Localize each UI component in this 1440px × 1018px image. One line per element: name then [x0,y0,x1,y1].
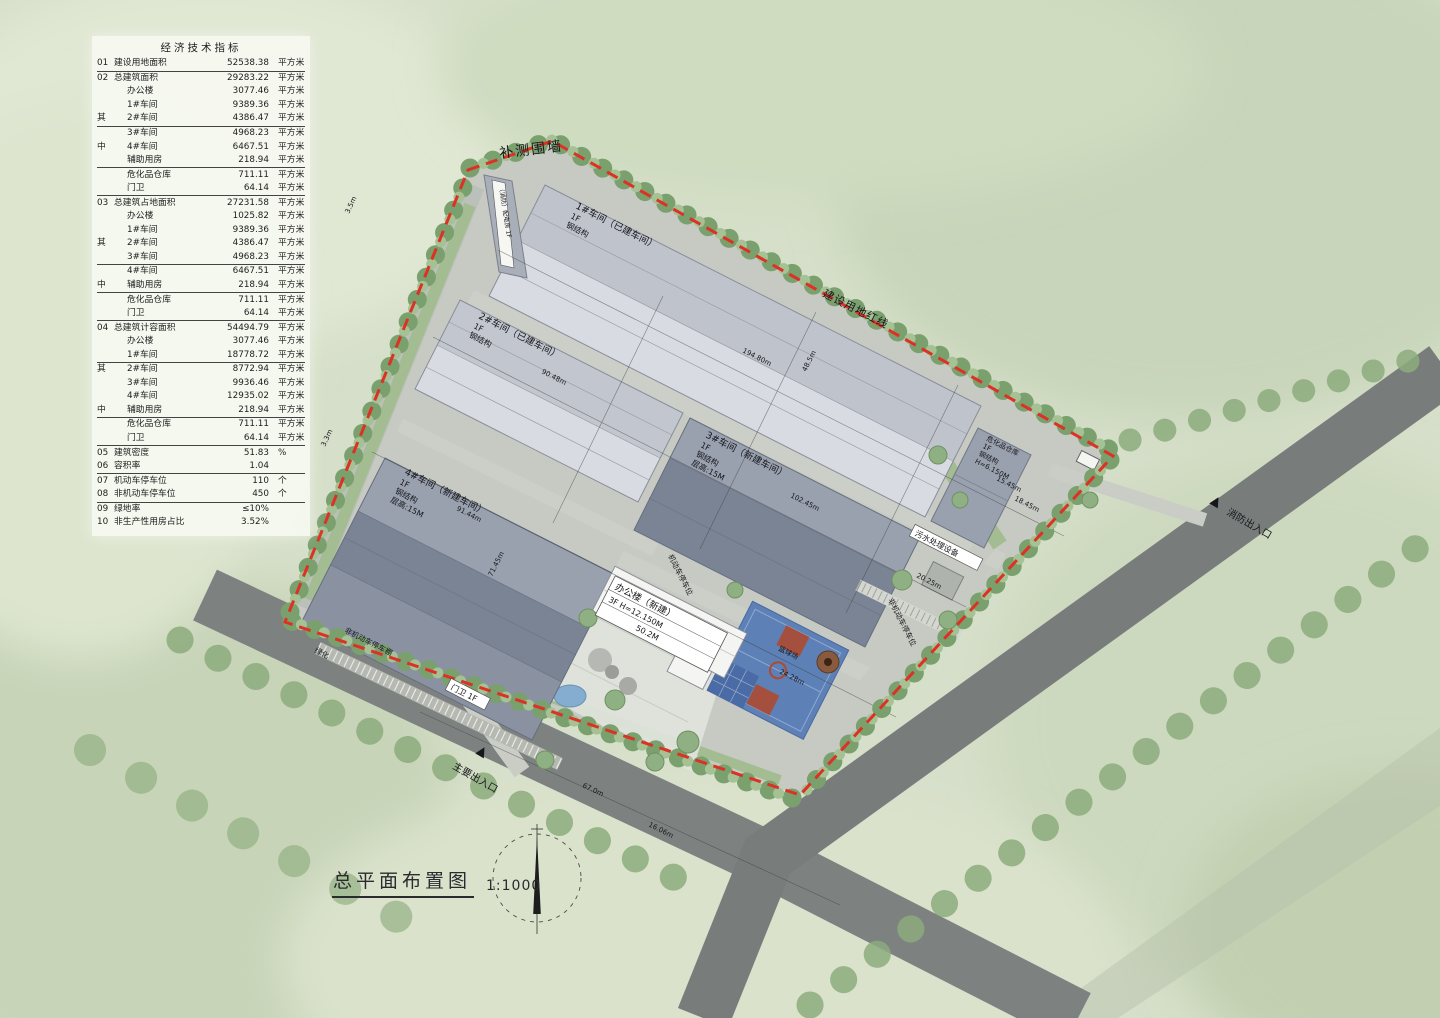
table-row: 门卫64.14平方米 [97,182,305,196]
table-row: 门卫64.14平方米 [97,432,305,446]
indicator-table-title: 经济技术指标 [97,40,305,57]
table-row: 09绿地率≤10% [97,502,305,517]
table-row: 危化品仓库711.11平方米 [97,167,305,182]
site-plan-canvas: 1#车间（已建车间）1F钢结构 2#车间（已建车间）1F钢结构 3#车间（新建车… [0,0,1440,1018]
table-row: 3#车间4968.23平方米 [97,126,305,141]
table-row: 办公楼3077.46平方米 [97,335,305,349]
table-row: 02总建筑面积29283.22平方米 [97,71,305,86]
table-row: 危化品仓库711.11平方米 [97,292,305,307]
indicator-table: 经济技术指标 01建设用地面积52538.38平方米02总建筑面积29283.2… [92,36,310,536]
table-row: 办公楼3077.46平方米 [97,85,305,99]
table-row: 其2#车间4386.47平方米 [97,112,305,126]
table-row: 08非机动车停车位450个 [97,488,305,502]
table-row: 中辅助用房218.94平方米 [97,404,305,418]
rock [605,665,619,679]
table-row: 3#车间9936.46平方米 [97,377,305,391]
table-row: 1#车间9389.36平方米 [97,99,305,113]
table-row: 1#车间18778.72平方米 [97,348,305,362]
table-row: 07机动车停车位110个 [97,473,305,488]
table-row: 辅助用房218.94平方米 [97,154,305,168]
table-row: 3#车间4968.23平方米 [97,251,305,265]
table-row: 05建筑密度51.83% [97,445,305,460]
table-row: 其2#车间4386.47平方米 [97,237,305,251]
table-row: 01建设用地面积52538.38平方米 [97,57,305,71]
planter-feature-center [824,658,832,666]
table-row: 其2#车间8772.94平方米 [97,362,305,377]
table-row: 中4#车间6467.51平方米 [97,140,305,154]
table-row: 06容积率1.04 [97,460,305,474]
table-row: 办公楼1025.82平方米 [97,210,305,224]
drawing-title: 总平面布置图 [332,866,474,898]
table-row: 4#车间6467.51平方米 [97,264,305,279]
table-row: 04总建筑计容面积54494.79平方米 [97,320,305,335]
table-row: 4#车间12935.02平方米 [97,390,305,404]
table-row: 危化品仓库711.11平方米 [97,417,305,432]
table-row: 门卫64.14平方米 [97,307,305,321]
title-block: 总平面布置图 1:1000 [332,866,541,898]
table-row: 03总建筑占地面积27231.58平方米 [97,195,305,210]
indicator-table-rows: 01建设用地面积52538.38平方米02总建筑面积29283.22平方米办公楼… [97,57,305,530]
drawing-scale: 1:1000 [486,878,541,898]
table-row: 1#车间9389.36平方米 [97,224,305,238]
table-row: 中辅助用房218.94平方米 [97,279,305,293]
table-row: 10非生产性用房占比3.52% [97,516,305,530]
